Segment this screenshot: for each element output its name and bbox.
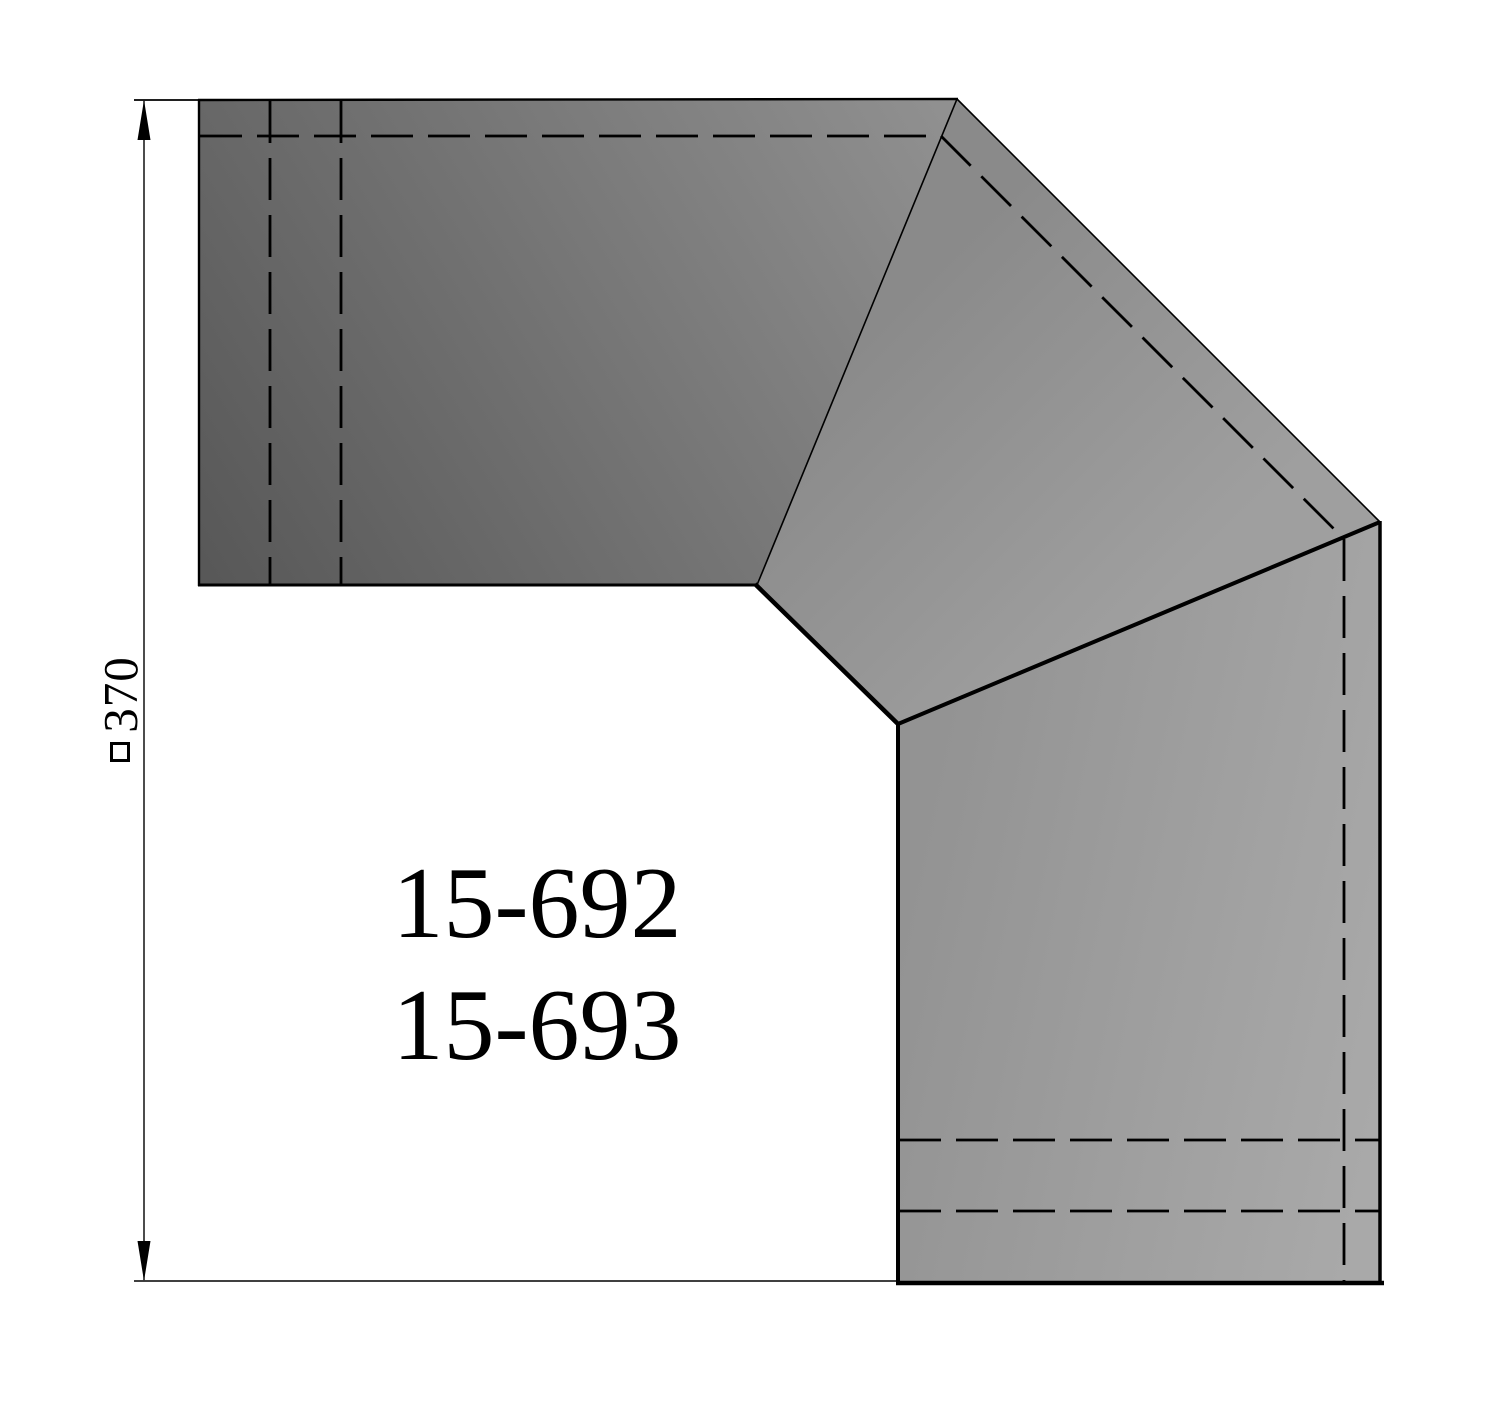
dimension-arrow-down-icon	[138, 1241, 151, 1281]
part-number-1: 15-692	[287, 843, 787, 965]
edge-top	[198, 99, 958, 100]
dimension-value: 370	[92, 656, 149, 733]
duct-elbow-drawing-page: 370 15-692 15-693	[0, 0, 1500, 1414]
duct-elbow-diagram	[0, 0, 1500, 1414]
dimension-arrow-up-icon	[138, 100, 151, 140]
part-number-2: 15-693	[287, 965, 787, 1087]
square-section-icon	[110, 742, 130, 762]
dimension-label: 370	[99, 651, 141, 767]
part-numbers: 15-692 15-693	[287, 843, 787, 1087]
